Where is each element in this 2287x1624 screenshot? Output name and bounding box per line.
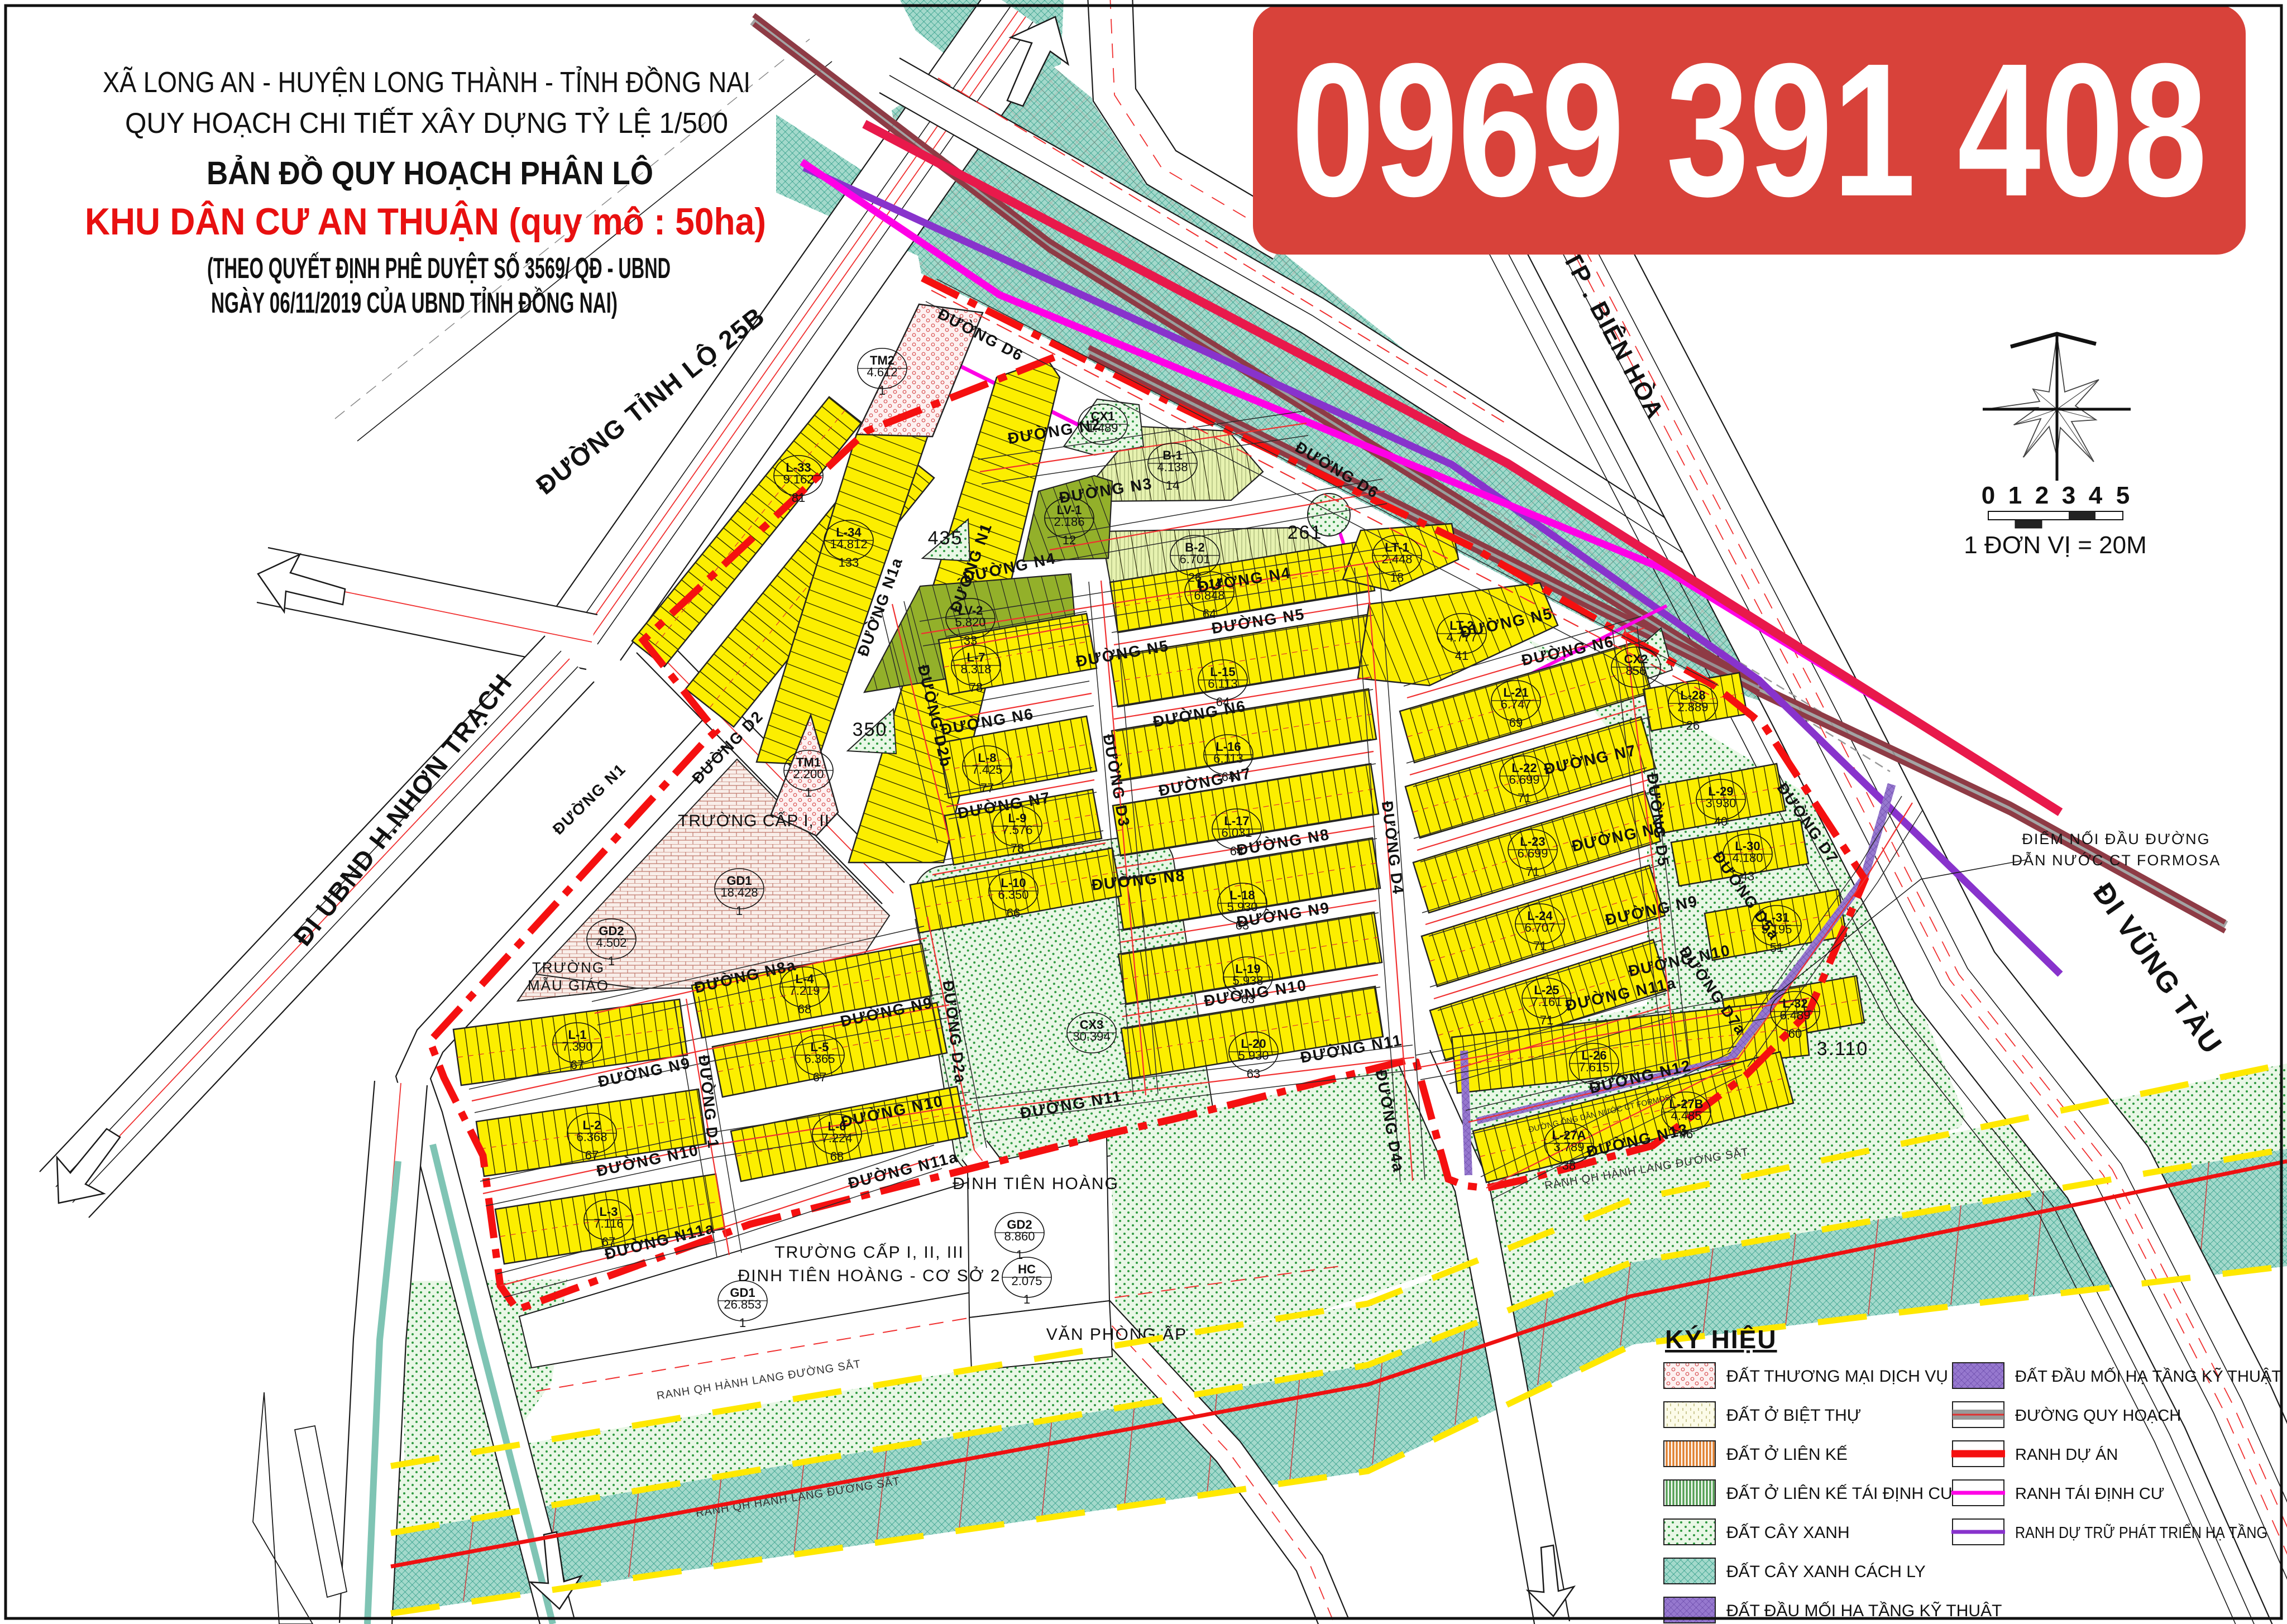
svg-text:6.489: 6.489	[1779, 1008, 1810, 1022]
svg-text:26: 26	[1188, 571, 1202, 585]
svg-text:41: 41	[1455, 649, 1468, 663]
svg-text:7.116: 7.116	[594, 1216, 623, 1230]
svg-text:33: 33	[964, 634, 977, 648]
svg-text:6.699: 6.699	[1517, 846, 1548, 860]
svg-text:14: 14	[1166, 478, 1179, 492]
svg-text:5.938: 5.938	[1232, 974, 1263, 988]
svg-text:6.368: 6.368	[576, 1130, 607, 1144]
svg-text:ĐẤT Ở BIỆT THỰ: ĐẤT Ở BIỆT THỰ	[1726, 1406, 1861, 1425]
svg-text:7.224: 7.224	[821, 1131, 852, 1145]
svg-text:2.186: 2.186	[1054, 515, 1084, 529]
svg-text:6.747: 6.747	[1500, 697, 1531, 711]
svg-text:3.789: 3.789	[1553, 1140, 1584, 1154]
svg-text:0: 0	[1982, 482, 1995, 509]
svg-text:64: 64	[1203, 607, 1216, 621]
svg-text:4.502: 4.502	[596, 936, 626, 950]
svg-text:63: 63	[1241, 992, 1255, 1006]
svg-text:8.318: 8.318	[960, 662, 991, 676]
svg-text:1: 1	[805, 785, 812, 799]
svg-text:ĐƯỜNG QUY HOẠCH: ĐƯỜNG QUY HOẠCH	[2015, 1406, 2181, 1425]
svg-text:(THEO QUYẾT ĐỊNH PHÊ DUYỆT SỐ: (THEO QUYẾT ĐỊNH PHÊ DUYỆT SỐ 3569/ QĐ -…	[207, 252, 671, 285]
svg-text:6.350: 6.350	[998, 888, 1028, 902]
svg-text:7.425: 7.425	[972, 763, 1002, 777]
svg-text:69: 69	[1509, 716, 1523, 730]
svg-text:77: 77	[980, 781, 994, 795]
svg-text:71: 71	[1518, 791, 1531, 805]
svg-text:1: 1	[736, 904, 743, 918]
svg-text:VĂN PHÒNG ẤP: VĂN PHÒNG ẤP	[1046, 1325, 1187, 1344]
svg-text:66: 66	[1007, 906, 1020, 920]
svg-text:ĐẤT CÂY XANH: ĐẤT CÂY XANH	[1726, 1523, 1850, 1542]
svg-text:71: 71	[1540, 1013, 1553, 1027]
svg-text:ĐINH TIÊN HOÀNG: ĐINH TIÊN HOÀNG	[953, 1175, 1119, 1193]
svg-text:67: 67	[585, 1148, 599, 1162]
svg-text:RANH TÁI ĐỊNH CƯ: RANH TÁI ĐỊNH CƯ	[2015, 1484, 2165, 1503]
svg-text:KÝ HIỆU: KÝ HIỆU	[1665, 1325, 1777, 1354]
svg-text:71: 71	[1533, 939, 1547, 953]
svg-text:ĐIỂM NỐI ĐẦU ĐƯỜNG: ĐIỂM NỐI ĐẦU ĐƯỜNG	[2022, 830, 2210, 847]
svg-text:0969 391 408: 0969 391 408	[1291, 24, 2207, 236]
svg-text:2.448: 2.448	[1381, 552, 1412, 566]
svg-text:7.390: 7.390	[562, 1039, 592, 1053]
svg-text:2.200: 2.200	[793, 767, 824, 781]
svg-text:856: 856	[1626, 664, 1647, 678]
svg-text:8.860: 8.860	[1004, 1229, 1035, 1243]
svg-text:64: 64	[1230, 844, 1243, 858]
svg-text:5.195: 5.195	[1761, 922, 1792, 936]
svg-text:18: 18	[1390, 571, 1404, 585]
svg-text:XÃ LONG AN - HUYỆN LONG THÀNH: XÃ LONG AN - HUYỆN LONG THÀNH - TỈNH ĐỒN…	[103, 66, 750, 99]
svg-text:1: 1	[739, 1316, 746, 1330]
svg-text:6.365: 6.365	[804, 1052, 835, 1066]
svg-text:81: 81	[792, 491, 805, 505]
svg-text:6.113: 6.113	[1213, 751, 1243, 765]
svg-text:7.161: 7.161	[1531, 995, 1562, 1009]
svg-text:QUY HOẠCH CHI TIẾT XÂY DỰNG TỶ: QUY HOẠCH CHI TIẾT XÂY DỰNG TỶ LỆ 1/500	[125, 107, 728, 140]
svg-text:KHU DÂN CƯ AN THUẬN (quy mô :: KHU DÂN CƯ AN THUẬN (quy mô : 50ha)	[85, 200, 766, 243]
svg-text:1: 1	[1023, 1292, 1030, 1306]
svg-text:60: 60	[1788, 1027, 1802, 1041]
svg-text:ĐẤT Ở LIÊN KẾ TÁI ĐỊNH CƯ: ĐẤT Ở LIÊN KẾ TÁI ĐỊNH CƯ	[1726, 1484, 1955, 1503]
svg-text:ĐẤT THƯƠNG MẠI DỊCH VỤ: ĐẤT THƯƠNG MẠI DỊCH VỤ	[1726, 1367, 1948, 1386]
svg-text:63: 63	[1236, 918, 1249, 932]
svg-text:78: 78	[1011, 841, 1024, 855]
svg-text:5: 5	[2116, 482, 2130, 509]
svg-text:6.701: 6.701	[1179, 552, 1210, 566]
svg-text:6.848: 6.848	[1194, 588, 1224, 602]
svg-text:6.707: 6.707	[1524, 921, 1555, 935]
svg-text:435: 435	[928, 528, 963, 549]
svg-text:TRƯỜNG CẤP I, II: TRƯỜNG CẤP I, II	[678, 811, 830, 830]
svg-text:133: 133	[839, 555, 859, 569]
svg-text:ĐẤT Ở LIÊN KẾ: ĐẤT Ở LIÊN KẾ	[1726, 1445, 1848, 1464]
svg-text:4.612: 4.612	[867, 365, 897, 379]
svg-text:TRƯỜNG CẤP I, II, III: TRƯỜNG CẤP I, II, III	[774, 1243, 964, 1262]
svg-text:4.138: 4.138	[1157, 460, 1188, 474]
svg-text:43: 43	[1741, 869, 1754, 883]
svg-text:7.615: 7.615	[1578, 1060, 1609, 1074]
svg-text:1: 1	[608, 954, 615, 968]
svg-text:67: 67	[602, 1235, 615, 1249]
svg-text:1 ĐƠN VỊ = 20M: 1 ĐƠN VỊ = 20M	[1964, 531, 2147, 559]
svg-text:ĐINH TIÊN HOÀNG - CƠ SỞ 2: ĐINH TIÊN HOÀNG - CƠ SỞ 2	[738, 1266, 1001, 1285]
svg-text:NGÀY 06/11/2019 CỦA UBND TỈNH: NGÀY 06/11/2019 CỦA UBND TỈNH ĐỒNG NAI)	[211, 286, 618, 319]
svg-text:6.113: 6.113	[1208, 677, 1237, 691]
svg-text:4: 4	[2089, 482, 2103, 509]
svg-text:51: 51	[1770, 941, 1783, 955]
svg-text:67: 67	[813, 1070, 826, 1084]
svg-text:46: 46	[1680, 1127, 1693, 1141]
svg-text:261: 261	[1288, 522, 1323, 543]
svg-text:12: 12	[1063, 533, 1076, 547]
svg-text:6.031: 6.031	[1221, 826, 1252, 840]
svg-text:67: 67	[571, 1058, 584, 1072]
svg-text:5.930: 5.930	[1227, 900, 1257, 914]
svg-text:ĐẤT CÂY XANH CÁCH LY: ĐẤT CÂY XANH CÁCH LY	[1726, 1562, 1926, 1581]
svg-text:5.820: 5.820	[955, 615, 985, 629]
svg-text:26.853: 26.853	[724, 1297, 761, 1311]
svg-text:1: 1	[1016, 1248, 1023, 1262]
svg-text:3.930: 3.930	[1705, 796, 1736, 810]
svg-text:4.777: 4.777	[1446, 630, 1477, 644]
svg-text:14.812: 14.812	[830, 537, 867, 551]
svg-text:350: 350	[853, 719, 888, 740]
svg-text:1.489: 1.489	[1087, 421, 1118, 435]
svg-text:RANH DỰ ÁN: RANH DỰ ÁN	[2015, 1445, 2118, 1464]
svg-text:TRƯỜNG: TRƯỜNG	[532, 959, 605, 976]
svg-text:2: 2	[2035, 482, 2049, 509]
svg-text:68: 68	[830, 1149, 844, 1163]
svg-text:30.394: 30.394	[1073, 1029, 1110, 1043]
svg-text:5.930: 5.930	[1238, 1048, 1269, 1062]
svg-text:72: 72	[1587, 1079, 1601, 1093]
svg-text:18.428: 18.428	[720, 885, 758, 899]
svg-text:2.075: 2.075	[1011, 1274, 1042, 1288]
svg-text:6.699: 6.699	[1509, 773, 1539, 787]
svg-text:3.110: 3.110	[1817, 1038, 1869, 1060]
svg-text:7.576: 7.576	[1002, 823, 1032, 837]
svg-text:2.889: 2.889	[1677, 700, 1708, 714]
svg-text:40: 40	[1714, 815, 1728, 828]
svg-text:63: 63	[1247, 1067, 1260, 1081]
svg-text:7.219: 7.219	[789, 984, 820, 998]
svg-text:DẪN NƯỚC CT FORMOSA: DẪN NƯỚC CT FORMOSA	[2012, 851, 2221, 869]
svg-text:38: 38	[1562, 1158, 1576, 1172]
svg-text:RANH DỰ TRỮ PHÁT TRIỂN HẠ TẦNG: RANH DỰ TRỮ PHÁT TRIỂN HẠ TẦNG	[2015, 1523, 2267, 1542]
svg-text:MẪU GIÁO: MẪU GIÁO	[528, 977, 609, 994]
svg-text:4.180: 4.180	[1732, 851, 1763, 865]
svg-text:ĐẤT ĐẦU MỐI HẠ TẦNG KỸ THUẬT: ĐẤT ĐẦU MỐI HẠ TẦNG KỸ THUẬT	[2015, 1367, 2281, 1386]
svg-text:68: 68	[798, 1002, 811, 1016]
svg-text:BẢN ĐỒ QUY HOẠCH PHÂN LÔ: BẢN ĐỒ QUY HOẠCH PHÂN LÔ	[207, 155, 653, 191]
svg-text:4.485: 4.485	[1671, 1109, 1701, 1123]
svg-text:3: 3	[2062, 482, 2075, 509]
svg-text:64: 64	[1222, 770, 1235, 784]
svg-text:1: 1	[879, 384, 886, 397]
svg-text:64: 64	[1216, 695, 1229, 709]
svg-text:9.162: 9.162	[783, 472, 814, 486]
svg-text:26: 26	[1686, 718, 1700, 732]
svg-text:78: 78	[969, 681, 983, 694]
svg-text:1: 1	[2008, 482, 2022, 509]
svg-text:71: 71	[1526, 865, 1539, 879]
